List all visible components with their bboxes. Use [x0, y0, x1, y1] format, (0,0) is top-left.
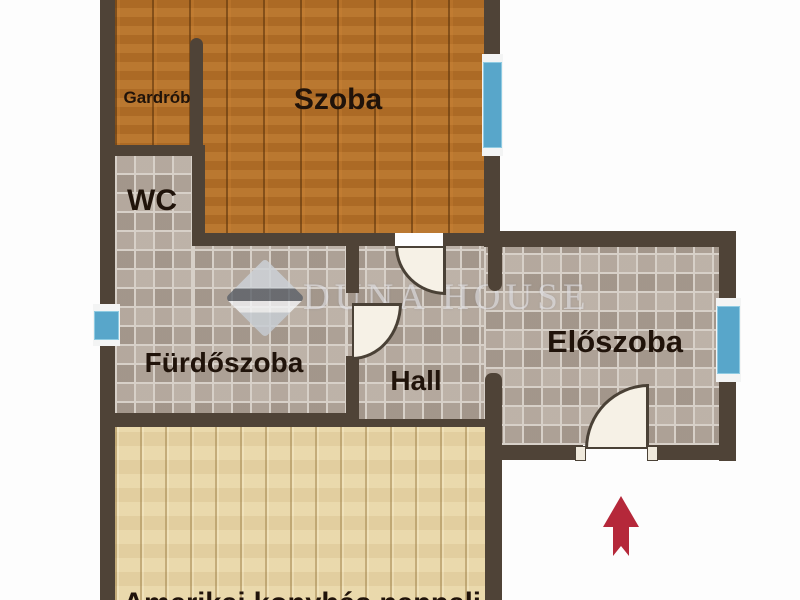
hall-nappali-threshold	[359, 419, 486, 427]
wall-furdoszoba-hall-upper	[346, 240, 359, 293]
room-label-wc: WC	[127, 184, 177, 218]
wall-gardrob-bottom	[100, 145, 195, 156]
wall-szoba-bottom-left	[192, 233, 395, 246]
window-szoba-glass	[483, 62, 502, 148]
wall-wc-right	[192, 145, 205, 246]
wall-gardrob-divider	[190, 38, 203, 156]
room-label-szoba: Szoba	[294, 83, 382, 117]
wall-eloszoba-top	[484, 231, 736, 247]
room-label-eloszoba: Előszoba	[547, 324, 683, 360]
window-furdoszoba-glass	[94, 311, 119, 340]
floor-plan: DUNA HOUSE Gardrób Szoba WC Fürdőszoba H…	[0, 0, 800, 600]
entrance-arrow-icon	[601, 492, 641, 560]
wall-furdoszoba-bottom	[100, 413, 359, 427]
wall-szoba-right-upper	[484, 0, 500, 56]
wall-eloszoba-bottom-left	[485, 445, 583, 460]
window-szoba	[482, 54, 503, 156]
window-furdoszoba	[93, 304, 120, 346]
nappali-floor	[115, 420, 485, 600]
room-label-nappali: Amerikai konyhás nappali	[123, 588, 481, 600]
room-label-gardrob: Gardrób	[123, 88, 190, 108]
wall-eloszoba-right-upper	[719, 231, 736, 300]
room-label-furdoszoba: Fürdőszoba	[145, 347, 304, 379]
wall-hall-eloszoba-lower	[485, 373, 502, 600]
room-label-hall: Hall	[390, 365, 441, 397]
wall-left-outer	[100, 0, 115, 600]
door-entrance-jamb-right	[647, 446, 658, 461]
window-eloszoba	[716, 298, 741, 382]
wall-hall-eloszoba-upper	[488, 247, 502, 291]
door-entrance-jamb-left	[575, 446, 586, 461]
wall-eloszoba-bottom-right	[648, 445, 736, 460]
window-eloszoba-glass	[717, 306, 740, 374]
